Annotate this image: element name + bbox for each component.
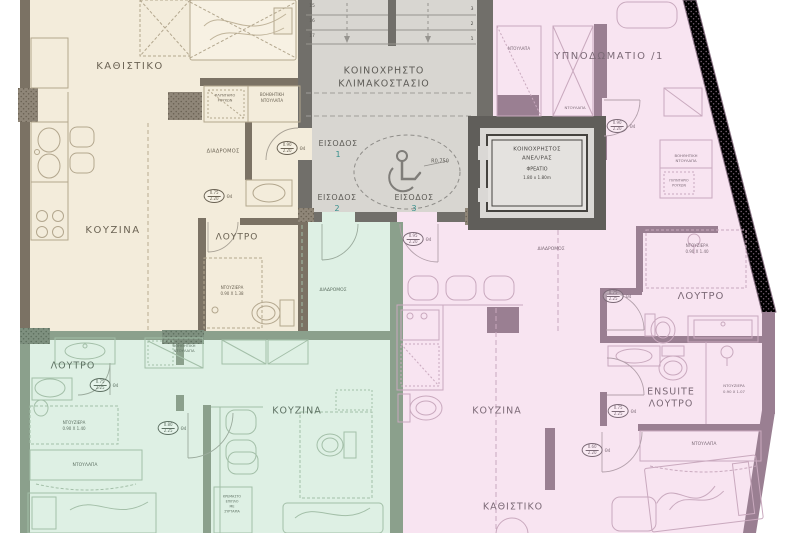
label-entrance-3-number: 3	[411, 205, 416, 213]
label-elevator-2: ΑΝΕΛ/ΡΑΣ	[522, 156, 552, 162]
label-entrance-1: ΕΙΣΟΔΟΣ	[318, 140, 357, 148]
label-pink-shower1-2: 0.90 Χ 1.40	[685, 250, 708, 254]
label-pink-bedroom: ΥΠΝΟΔΩΜΑΤΙΟ /1	[554, 52, 664, 62]
door-marker-beige-corridor: 0.902.20Θ4	[277, 141, 306, 155]
label-green-shower-2: 0.90 Χ 1.40	[62, 427, 85, 431]
label-beige-corridor: ΔΙΑΔΡΟΜΟΣ	[207, 150, 240, 155]
door-marker-pink-entrance: 0.952.20Θ4	[403, 232, 432, 246]
label-pink-living: ΚΑΘΙΣΤΙΚΟ	[483, 502, 543, 512]
label-step-3: 3	[471, 8, 474, 13]
label-step-1: 1	[471, 38, 474, 43]
label-step-2: 2	[471, 23, 474, 28]
door-marker-pink-living: 0.602.20Θ4	[582, 443, 611, 457]
label-green-corridor: ΔΙΑΔΡΟΜΟΣ	[319, 289, 346, 294]
label-pink-shower1-1: ΝΤΟΥΖΙΕΡΑ	[686, 244, 709, 248]
label-pink-kitchen: ΚΟΥΖΙΝΑ	[472, 406, 521, 416]
label-green-aux-closet-2: ΝΤΟΥΛΑΠΑ	[173, 349, 194, 353]
label-beige-washer-1: ΠΛΥΝΤΗΡΙΟ	[215, 94, 235, 98]
label-pink-wardrobe: ΝΤΟΥΛΑΠΑ	[691, 443, 716, 448]
label-turning-radius: R0.750	[431, 160, 449, 165]
label-pink-corridor: ΔΙΑΔΡΟΜΟΣ	[537, 248, 564, 253]
label-elevator-1: ΚΟΙΝΟΧΡΗΣΤΟΣ	[513, 147, 560, 153]
label-stairwell-name-2: ΚΛΙΜΑΚΟΣΤΑΣΙΟ	[338, 79, 430, 89]
door-marker-pink-bath: 0.752.25Θ4	[603, 289, 632, 303]
label-pink-aux-closet-2: ΝΤΟΥΛΑΠΑ	[675, 159, 696, 163]
door-marker-pink-bedroom: 0.902.20Θ4	[607, 119, 636, 133]
door-marker-beige-bath: 0.752.20Θ4	[204, 189, 233, 203]
label-beige-living: ΚΑΘΙΣΤΙΚΟ	[96, 62, 164, 72]
label-green-kitchen: ΚΟΥΖΙΝΑ	[272, 406, 321, 416]
door-marker-green-bath: 0.752.25Θ4	[90, 378, 119, 392]
label-pink-bath: ΛΟΥΤΡΟ	[678, 292, 725, 302]
label-pink-closet-top: ΝΤΟΥΛΑΠΑ	[508, 47, 530, 51]
label-green-shower-1: ΝΤΟΥΖΙΕΡΑ	[63, 421, 86, 425]
label-beige-aux-closet-1: ΒΟΗΘΗΤΙΚΗ	[260, 93, 284, 97]
label-stairwell-name-1: ΚΟΙΝΟΧΡΗΣΤΟ	[344, 66, 425, 76]
label-entrance-3: ΕΙΣΟΔΟΣ	[394, 194, 433, 202]
door-marker-green-corridor: 0.802.25Θ4	[158, 421, 187, 435]
label-pink-shower2-2: 0.90 Χ 1.07	[723, 390, 745, 394]
floor-plan-canvas: ΚΑΘΙΣΤΙΚΟ ΚΟΥΖΙΝΑ ΛΟΥΤΡΟ ΔΙΑΔΡΟΜΟΣ ΒΟΗΘΗ…	[0, 0, 800, 533]
label-pink-shower2-1: ΝΤΟΥΖΙΕΡΑ	[723, 384, 744, 388]
label-pink-washer-1: ΠΛΥΝΤΗΡΙΟ	[669, 179, 688, 182]
label-beige-kitchen: ΚΟΥΖΙΝΑ	[85, 226, 140, 236]
label-entrance-2-number: 2	[334, 205, 339, 213]
label-green-cabinet-note-3: ΜΕ	[230, 505, 235, 508]
label-beige-aux-closet-2: ΝΤΟΥΛΑΠΑ	[261, 99, 283, 103]
label-step-17: 17	[309, 35, 315, 40]
door-marker-pink-ensuite: 0.752.25Θ4	[608, 404, 637, 418]
label-pink-ensuite-2: ΛΟΥΤΡΟ	[649, 399, 694, 409]
label-beige-shower-2: 0.90 Χ 1.38	[220, 292, 243, 296]
label-elevator-4: 1.80 x 1.80m	[523, 176, 551, 180]
label-green-cabinet-note-1: ΚΡΕΜΑΣΤΟ	[223, 495, 241, 498]
label-green-bath: ΛΟΥΤΡΟ	[51, 361, 96, 371]
label-elevator-3: ΦΡΕΑΤΙΟ	[526, 169, 547, 174]
label-beige-shower-1: ΝΤΟΥΖΙΕΡΑ	[221, 286, 244, 290]
label-entrance-2: ΕΙΣΟΔΟΣ	[317, 194, 356, 202]
label-green-cabinet-note-4: ΣΥΡΤΑΡΙΑ	[224, 510, 240, 513]
label-step-15: 15	[309, 5, 315, 10]
label-beige-bath: ΛΟΥΤΡΟ	[216, 234, 259, 243]
label-pink-closet-mid: ΝΤΟΥΛΑΠΑ	[564, 106, 585, 110]
label-pink-washer-2: ΡΟΥΧΩΝ	[672, 184, 686, 187]
label-green-cabinet-note-2: ΕΠΙΠΛΟ	[226, 500, 239, 503]
label-entrance-1-number: 1	[335, 151, 340, 159]
label-pink-ensuite-1: ENSUITE	[647, 387, 695, 397]
label-green-wardrobe: ΝΤΟΥΛΑΠΑ	[72, 464, 97, 469]
label-step-16: 16	[309, 20, 315, 25]
label-beige-washer-2: ΡΟΥΧΩΝ	[218, 99, 233, 103]
